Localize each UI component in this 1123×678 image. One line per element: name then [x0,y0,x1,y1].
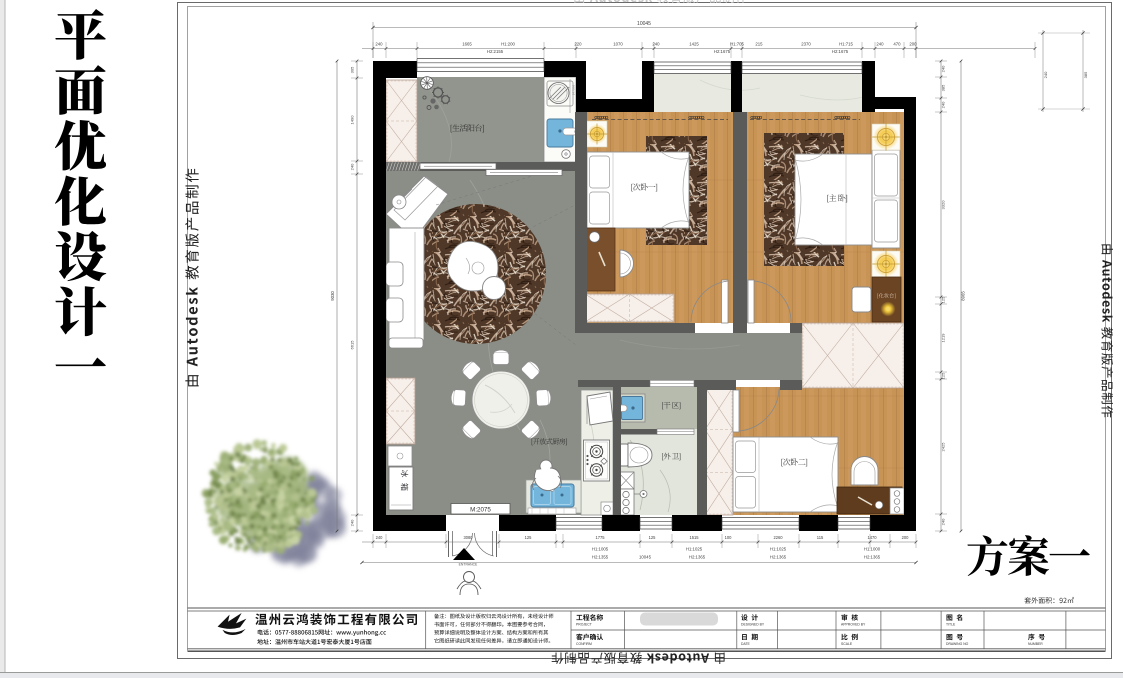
svg-text:240: 240 [375,42,383,47]
svg-text:NUMBER: NUMBER [1028,642,1043,646]
svg-text:H2:1365: H2:1365 [689,555,706,560]
svg-text:H2:1675: H2:1675 [714,49,731,54]
svg-text:240: 240 [941,101,946,108]
svg-text:1775: 1775 [595,535,605,540]
svg-text:M:2075: M:2075 [470,507,491,514]
svg-text:H1:1000: H1:1000 [864,547,881,552]
svg-text:240: 240 [350,163,355,170]
svg-text:3320: 3320 [941,200,946,210]
svg-text:200: 200 [909,42,917,47]
svg-text:SCALE: SCALE [841,642,853,646]
svg-text:470: 470 [893,42,901,47]
svg-text:9030: 9030 [330,291,335,301]
svg-text:APPROVED BY: APPROVED BY [841,623,866,627]
svg-text:1470: 1470 [867,535,877,540]
svg-text:100: 100 [725,535,733,540]
svg-text:H2:1365: H2:1365 [864,555,881,560]
svg-text:CONFIRM: CONFIRM [576,642,592,646]
svg-text:TITLE: TITLE [946,623,956,627]
svg-text:240: 240 [350,519,355,526]
svg-text:H2:1355: H2:1355 [592,555,609,560]
svg-text:125: 125 [525,535,533,540]
svg-text:DRAWING NO: DRAWING NO [946,642,969,646]
svg-text:1425: 1425 [689,42,699,47]
svg-text:240: 240 [941,518,946,525]
svg-text:H1:1025: H1:1025 [686,547,703,552]
svg-text:H1:1005: H1:1005 [592,547,609,552]
svg-text:DESIGNED BY: DESIGNED BY [741,623,765,627]
svg-text:1515: 1515 [689,535,699,540]
svg-text:125: 125 [941,296,946,303]
svg-text:240: 240 [941,65,946,72]
svg-text:DATE: DATE [741,642,751,646]
svg-text:385: 385 [1083,71,1088,78]
svg-text:385: 385 [941,84,946,91]
svg-text:115: 115 [817,535,824,540]
svg-text:200: 200 [902,535,910,540]
svg-text:1070: 1070 [613,42,623,47]
svg-text:240: 240 [876,42,884,47]
svg-text:240: 240 [652,42,660,47]
svg-text:125: 125 [649,535,657,540]
svg-text:H1:200: H1:200 [501,42,515,47]
svg-text:H2:1675: H2:1675 [832,49,849,54]
svg-text:H1:715: H1:715 [839,42,853,47]
svg-text:10045: 10045 [639,555,652,560]
svg-text:125: 125 [941,372,946,379]
svg-text:1219: 1219 [941,333,946,343]
svg-text:2260: 2260 [773,535,783,540]
svg-text:215: 215 [755,42,763,47]
svg-text:PROJECT: PROJECT [576,623,592,627]
svg-text:H2:2155: H2:2155 [487,49,504,54]
svg-text:305: 305 [350,66,355,73]
svg-text:H2:1365: H2:1365 [770,555,787,560]
svg-text:ENTRANCE: ENTRANCE [459,563,478,567]
svg-text:240: 240 [1043,71,1048,78]
svg-text:6615: 6615 [350,340,355,350]
svg-text:2425: 2425 [941,442,946,452]
svg-text:1490: 1490 [350,115,355,125]
svg-text:3080: 3080 [463,535,473,540]
svg-text:8965: 8965 [961,291,966,301]
svg-text:0 0 1 1 0: 0 0 1 1 0 [572,85,576,96]
svg-text:1665: 1665 [462,42,472,47]
svg-text:H1:1025: H1:1025 [770,547,787,552]
svg-text:10045: 10045 [637,21,651,27]
svg-text:H1:705: H1:705 [730,42,744,47]
svg-text:240: 240 [376,535,384,540]
svg-text:2370: 2370 [801,42,811,47]
svg-text:220: 220 [574,42,582,47]
